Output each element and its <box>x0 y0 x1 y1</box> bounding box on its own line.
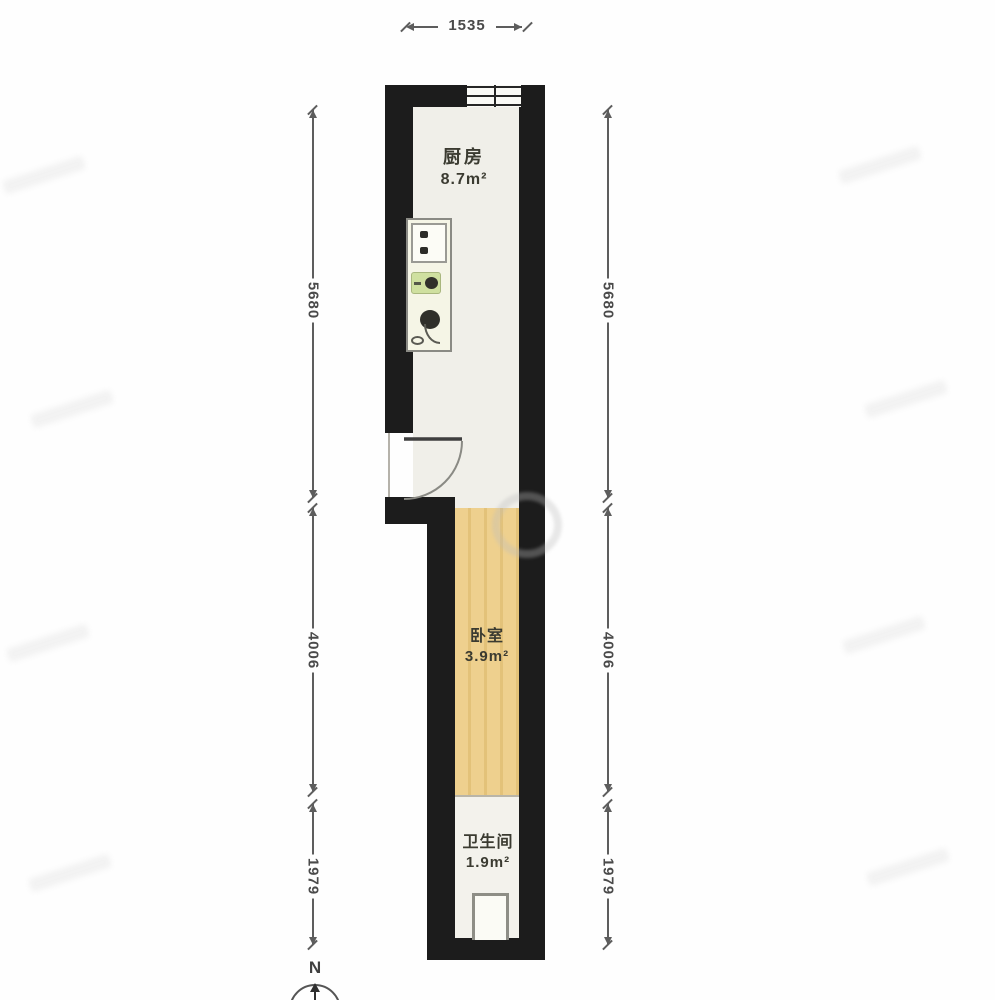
bathroom-label: 卫生间 1.9m² <box>442 828 534 871</box>
watermark <box>842 615 926 654</box>
kitchen-label: 厨房 8.7m² <box>406 143 522 189</box>
faucet-icon <box>424 324 440 344</box>
left-wall-lower <box>427 524 455 960</box>
dim-top-value: 1535 <box>438 17 496 34</box>
dim-left-2-value: 4006 <box>305 629 322 673</box>
bedroom-area: 3.9m² <box>450 648 524 665</box>
dim-left-3-value: 1979 <box>305 855 322 899</box>
watermark <box>838 145 922 184</box>
sink-icon <box>411 272 441 294</box>
watermark <box>2 155 86 194</box>
watermark <box>864 379 948 418</box>
compass-n-label: N <box>303 958 327 978</box>
bottom-wall <box>427 938 545 960</box>
dim-right-3-value: 1979 <box>600 855 617 899</box>
dim-right-1-value: 5680 <box>600 279 617 323</box>
watermark <box>28 853 112 892</box>
window-icon <box>467 85 521 107</box>
bedroom-label: 卧室 3.9m² <box>450 622 524 665</box>
stove-icon <box>411 223 447 263</box>
drain-icon <box>411 336 424 345</box>
kitchen-counter <box>406 218 452 352</box>
dim-left-1-value: 5680 <box>305 279 322 323</box>
dim-right-2-value: 4006 <box>600 629 617 673</box>
bedroom-name: 卧室 <box>450 622 524 646</box>
door-swing-icon <box>385 428 477 512</box>
shower-tray-icon <box>472 893 509 940</box>
bathroom-name: 卫生间 <box>442 828 534 852</box>
watermark <box>866 847 950 886</box>
bathroom-area: 1.9m² <box>442 854 534 871</box>
compass-needle <box>314 990 316 1000</box>
watermark <box>30 389 114 428</box>
kitchen-area: 8.7m² <box>406 171 522 189</box>
watermark <box>6 623 90 662</box>
floorplan-canvas: 厨房 8.7m² 卧室 3.9m² 卫生间 1.9m² 1535 5680 40… <box>0 0 995 1000</box>
kitchen-name: 厨房 <box>406 143 522 169</box>
